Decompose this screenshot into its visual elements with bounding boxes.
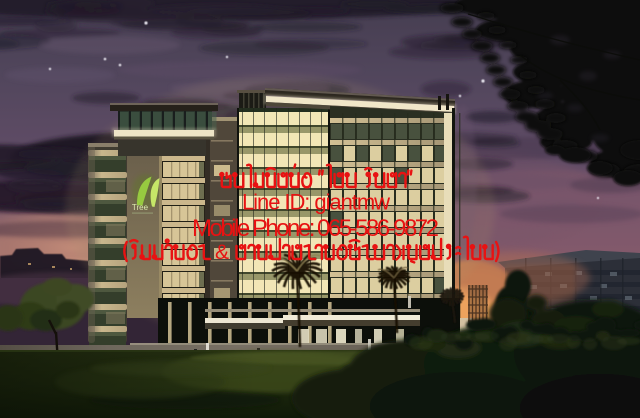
svg-text:Tree: Tree	[132, 203, 149, 212]
svg-text:Line ID: giantmw: Line ID: giantmw	[242, 190, 390, 215]
svg-text:Mobile Phone: 065-586-9872: Mobile Phone: 065-586-9872	[192, 215, 439, 242]
svg-text:&: &	[215, 241, 229, 264]
